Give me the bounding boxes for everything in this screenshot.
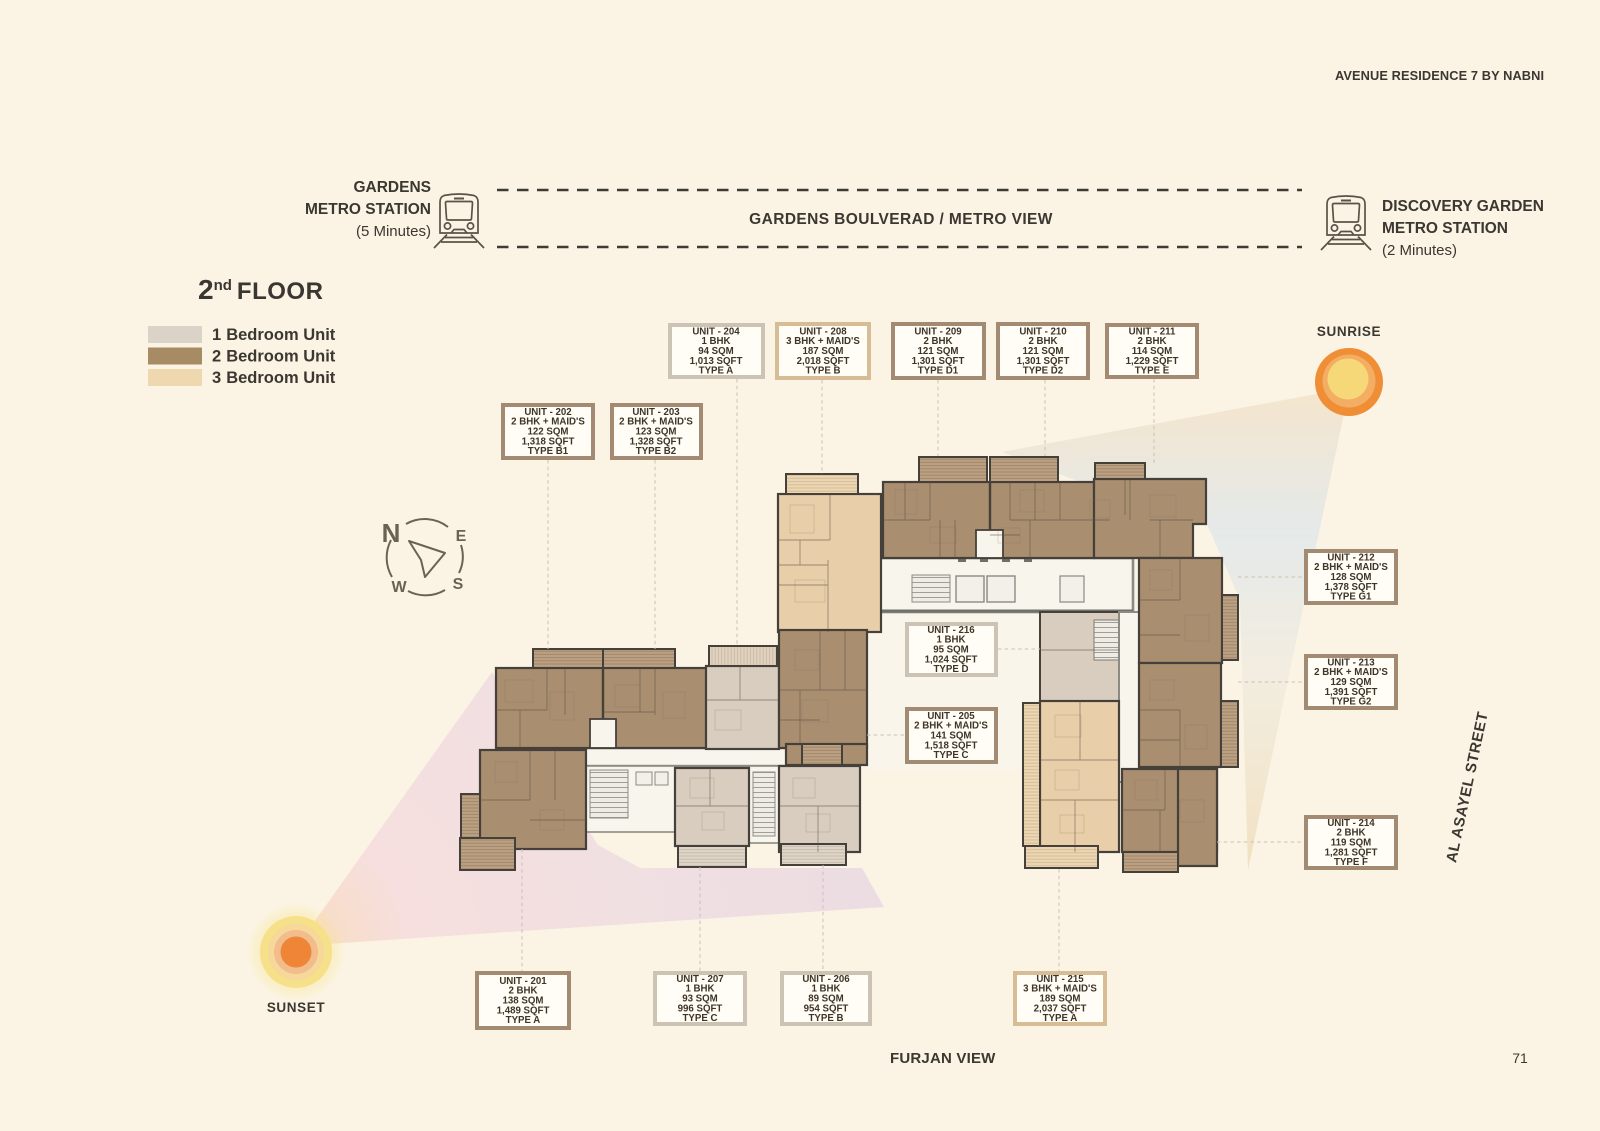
- svg-text:TYPE G2: TYPE G2: [1331, 697, 1372, 708]
- svg-text:FURJAN VIEW: FURJAN VIEW: [890, 1050, 996, 1067]
- svg-text:TYPE B2: TYPE B2: [636, 446, 676, 457]
- svg-text:GARDENS: GARDENS: [353, 179, 431, 196]
- svg-text:TYPE B1: TYPE B1: [528, 446, 569, 457]
- svg-text:AVENUE RESIDENCE 7 BY NABNI: AVENUE RESIDENCE 7 BY NABNI: [1335, 68, 1544, 83]
- svg-text:TYPE A: TYPE A: [506, 1015, 541, 1026]
- svg-text:71: 71: [1512, 1050, 1528, 1066]
- svg-text:3Bedroom Unit: 3Bedroom Unit: [212, 369, 336, 387]
- svg-text:GARDENS BOULVERAD / METRO VIEW: GARDENS BOULVERAD / METRO VIEW: [749, 211, 1053, 228]
- svg-text:TYPE B: TYPE B: [809, 1013, 844, 1024]
- svg-text:(2 Minutes): (2 Minutes): [1382, 242, 1457, 259]
- svg-text:1Bedroom Unit: 1Bedroom Unit: [212, 326, 336, 344]
- svg-text:S: S: [453, 576, 464, 593]
- svg-text:N: N: [382, 518, 401, 548]
- svg-text:TYPE F: TYPE F: [1334, 857, 1368, 868]
- svg-text:TYPE G1: TYPE G1: [1331, 592, 1373, 603]
- svg-text:(5 Minutes): (5 Minutes): [356, 223, 431, 240]
- svg-text:METRO STATION: METRO STATION: [305, 201, 431, 218]
- svg-text:TYPE B: TYPE B: [806, 366, 841, 377]
- svg-text:DISCOVERY GARDEN: DISCOVERY GARDEN: [1382, 198, 1544, 215]
- svg-text:TYPE C: TYPE C: [683, 1013, 718, 1024]
- svg-text:E: E: [456, 528, 467, 545]
- svg-text:TYPE A: TYPE A: [1043, 1013, 1078, 1024]
- svg-text:TYPE E: TYPE E: [1135, 366, 1170, 377]
- svg-text:TYPE A: TYPE A: [699, 366, 734, 377]
- svg-text:TYPE D: TYPE D: [934, 664, 969, 675]
- svg-text:TYPE D1: TYPE D1: [918, 366, 959, 377]
- svg-text:W: W: [391, 579, 407, 596]
- svg-text:TYPE C: TYPE C: [934, 750, 969, 761]
- svg-text:SUNSET: SUNSET: [267, 1000, 326, 1015]
- svg-text:2Bedroom Unit: 2Bedroom Unit: [212, 348, 336, 366]
- svg-text:TYPE D2: TYPE D2: [1023, 366, 1063, 377]
- svg-text:SUNRISE: SUNRISE: [1317, 324, 1381, 339]
- svg-text:METRO STATION: METRO STATION: [1382, 220, 1508, 237]
